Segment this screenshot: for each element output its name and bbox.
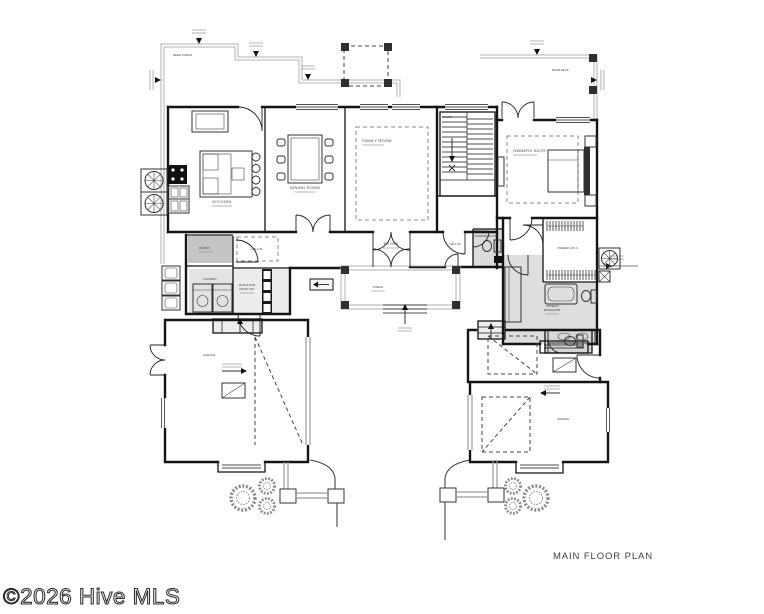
stairwell: STAIRS bbox=[440, 112, 495, 196]
garage-left: GARAGE bbox=[150, 318, 312, 472]
hvac-fan-units bbox=[141, 169, 167, 215]
family-room: FAMILY ROOM bbox=[356, 127, 428, 220]
hall-2: HALL #2 bbox=[449, 242, 461, 246]
mud-room-label-2: DROP OFF bbox=[240, 287, 255, 291]
rear-porch-label: REAR PORCH bbox=[173, 53, 192, 57]
owners-wic-label: OWNERS W.I.C. bbox=[557, 246, 579, 250]
porch-label: PORCH bbox=[373, 285, 383, 289]
family-room-label: FAMILY ROOM bbox=[362, 138, 392, 143]
entry-marker bbox=[310, 279, 333, 290]
fence-left bbox=[280, 460, 344, 527]
owners-suite-label: OWNERS SUITE bbox=[513, 148, 546, 153]
owners-suite: OWNERS SUITE bbox=[498, 136, 596, 206]
fence-right bbox=[440, 460, 504, 540]
floor-plan-page: STAIRS KITCHEN DINING ROOM bbox=[0, 0, 764, 614]
floor-plan-drawing: STAIRS KITCHEN DINING ROOM bbox=[0, 0, 764, 614]
kitchen: KITCHEN bbox=[168, 111, 260, 213]
front-porch: PORCH bbox=[310, 266, 460, 331]
deck-posts bbox=[589, 54, 597, 94]
owners-bath-label-2: BATHROOM bbox=[544, 308, 561, 312]
equipment-pads bbox=[162, 266, 180, 310]
dining-room: DINING ROOM bbox=[277, 135, 333, 192]
stairs-label: STAIRS bbox=[442, 115, 452, 119]
condenser-fan-right bbox=[599, 248, 620, 282]
floor-fills bbox=[188, 229, 597, 353]
watermark: ©2026 Hive MLS bbox=[3, 584, 180, 609]
kitchen-label: KITCHEN bbox=[213, 199, 232, 204]
hall-2-label: HALL #2 bbox=[449, 242, 461, 246]
kitchen-island bbox=[200, 151, 252, 197]
powder-room-label: POWDER ROOM bbox=[475, 234, 498, 238]
garage-right-label: GARAGE bbox=[557, 417, 569, 421]
plan-title: MAIN FLOOR PLAN bbox=[553, 551, 653, 562]
pantry-label: PANTRY bbox=[199, 246, 211, 250]
owners-wic: OWNERS W.I.C. bbox=[547, 221, 595, 280]
dining-room-label: DINING ROOM bbox=[290, 185, 320, 190]
bed bbox=[548, 136, 596, 206]
island-stools bbox=[252, 153, 260, 196]
window bbox=[296, 104, 488, 110]
garage-left-label: GARAGE bbox=[203, 353, 215, 357]
shrubs bbox=[231, 479, 548, 514]
rear-deck-label: REAR DECK bbox=[552, 68, 569, 72]
laundry-label: LAUNDRY bbox=[203, 277, 217, 281]
garage-right: GARAGE bbox=[466, 382, 611, 473]
